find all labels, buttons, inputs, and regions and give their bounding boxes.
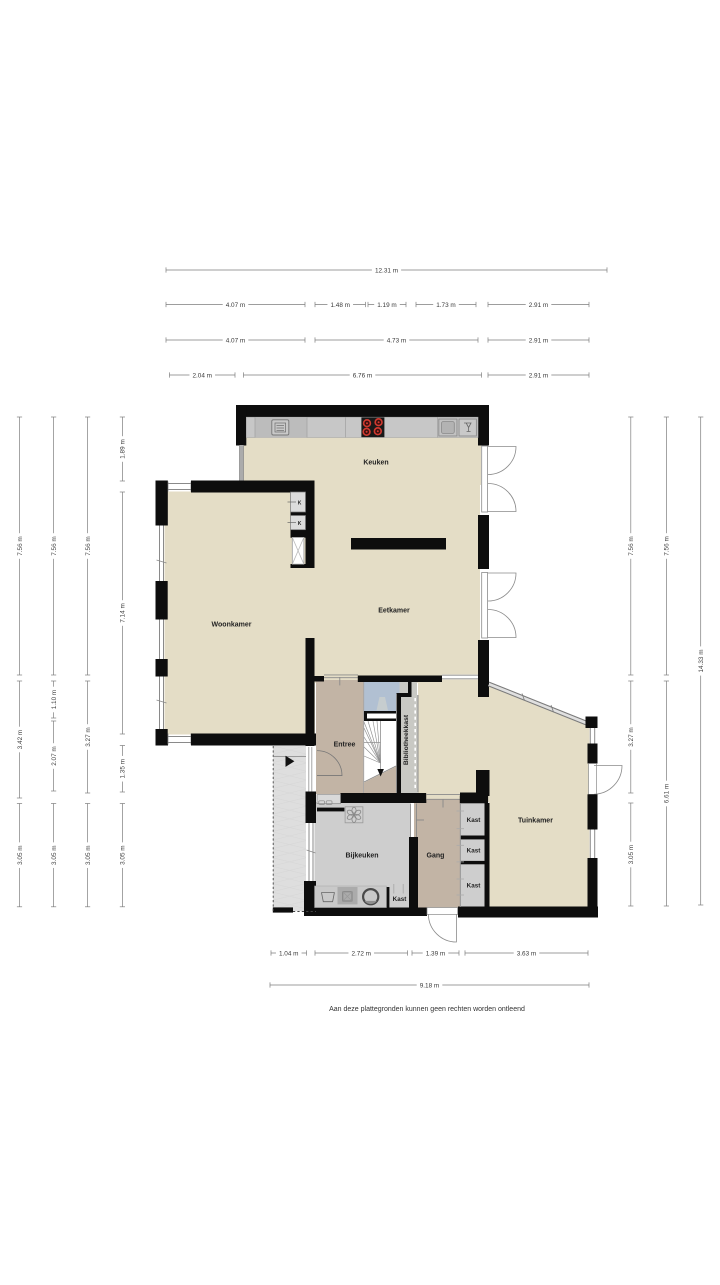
svg-text:3.05 m: 3.05 m xyxy=(17,845,24,865)
svg-text:2.91 m: 2.91 m xyxy=(529,372,549,379)
svg-text:6.76 m: 6.76 m xyxy=(353,372,373,379)
svg-text:7.56 m: 7.56 m xyxy=(664,536,671,556)
svg-text:14.33 m: 14.33 m xyxy=(698,649,705,672)
svg-text:K: K xyxy=(298,521,302,527)
svg-text:1.04 m: 1.04 m xyxy=(279,950,299,957)
svg-text:7.56 m: 7.56 m xyxy=(628,536,635,556)
svg-text:Kast: Kast xyxy=(467,848,482,855)
svg-text:7.14 m: 7.14 m xyxy=(120,603,127,623)
svg-text:1.10 m: 1.10 m xyxy=(51,690,58,710)
svg-text:1.73 m: 1.73 m xyxy=(436,302,456,309)
svg-text:Keuken: Keuken xyxy=(363,460,388,467)
svg-text:1.48 m: 1.48 m xyxy=(330,302,350,309)
svg-text:2.91 m: 2.91 m xyxy=(529,302,549,309)
svg-text:1.89 m: 1.89 m xyxy=(120,439,127,459)
svg-text:Woonkamer: Woonkamer xyxy=(212,622,252,629)
svg-text:4.73 m: 4.73 m xyxy=(387,337,407,344)
svg-text:Eetkamer: Eetkamer xyxy=(378,608,410,615)
svg-text:K: K xyxy=(298,501,302,507)
svg-text:3.05 m: 3.05 m xyxy=(51,845,58,865)
svg-text:3.27 m: 3.27 m xyxy=(628,727,635,747)
svg-text:Bijkeuken: Bijkeuken xyxy=(345,853,378,860)
svg-text:2.72 m: 2.72 m xyxy=(351,950,371,957)
svg-text:2.07 m: 2.07 m xyxy=(51,746,58,766)
svg-text:1.39 m: 1.39 m xyxy=(426,950,446,957)
svg-text:9.18 m: 9.18 m xyxy=(420,982,440,989)
svg-text:6.61 m: 6.61 m xyxy=(664,784,671,804)
svg-text:Kast: Kast xyxy=(467,817,482,824)
svg-text:4.07 m: 4.07 m xyxy=(226,302,246,309)
svg-text:7.56 m: 7.56 m xyxy=(17,536,24,556)
svg-text:Entree: Entree xyxy=(334,742,356,749)
svg-text:3.27 m: 3.27 m xyxy=(85,727,92,747)
svg-text:7.56 m: 7.56 m xyxy=(51,536,58,556)
svg-text:Bibliotheekkast: Bibliotheekkast xyxy=(403,714,410,765)
svg-text:Tuinkamer: Tuinkamer xyxy=(518,818,553,825)
svg-text:Gang: Gang xyxy=(427,853,445,860)
svg-text:Kast: Kast xyxy=(393,896,408,903)
svg-text:2.91 m: 2.91 m xyxy=(529,337,549,344)
svg-text:1.35 m: 1.35 m xyxy=(120,759,127,779)
svg-text:3.63 m: 3.63 m xyxy=(517,950,537,957)
svg-text:3.05 m: 3.05 m xyxy=(85,845,92,865)
svg-text:3.05 m: 3.05 m xyxy=(120,845,127,865)
svg-text:Kast: Kast xyxy=(467,883,482,890)
svg-text:4.07 m: 4.07 m xyxy=(226,337,246,344)
svg-text:12.31 m: 12.31 m xyxy=(375,267,398,274)
svg-text:1.19 m: 1.19 m xyxy=(377,302,397,309)
svg-text:Aan deze plattegronden kunnen: Aan deze plattegronden kunnen geen recht… xyxy=(329,1006,525,1013)
svg-text:2.04 m: 2.04 m xyxy=(192,372,212,379)
svg-text:7.56 m: 7.56 m xyxy=(85,536,92,556)
svg-text:3.05 m: 3.05 m xyxy=(628,845,635,865)
svg-text:3.42 m: 3.42 m xyxy=(17,730,24,750)
